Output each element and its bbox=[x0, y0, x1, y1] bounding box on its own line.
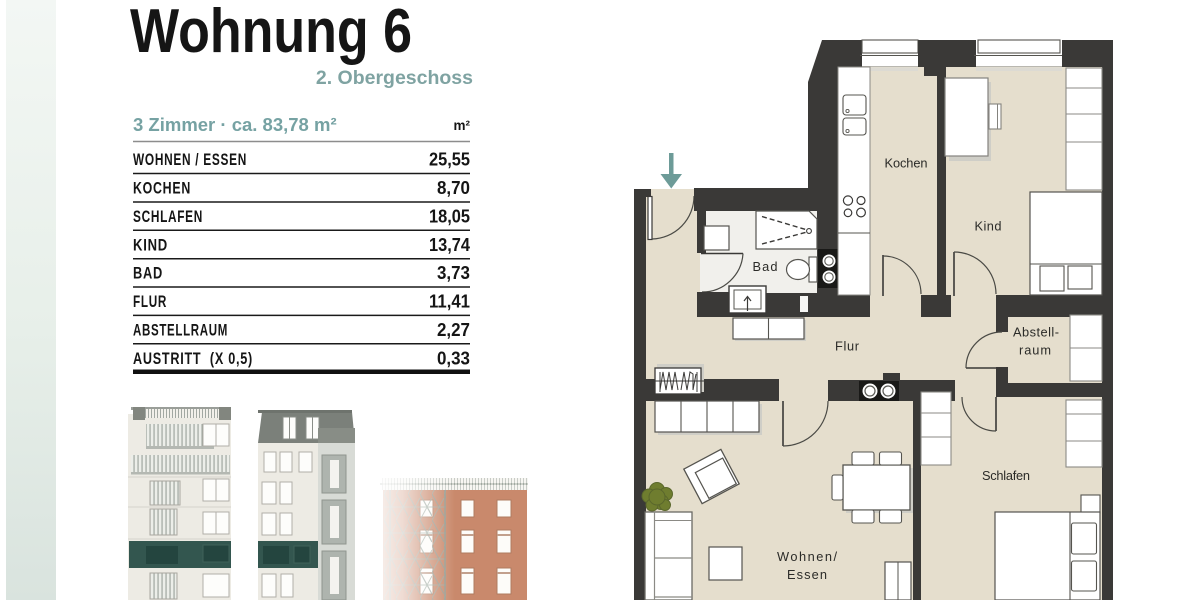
svg-text:KOCHEN: KOCHEN bbox=[133, 179, 191, 198]
svg-text:Essen: Essen bbox=[787, 567, 827, 582]
svg-text:Bad: Bad bbox=[753, 259, 778, 274]
svg-text:2,27: 2,27 bbox=[437, 320, 470, 340]
svg-text:BAD: BAD bbox=[133, 264, 163, 283]
svg-text:8,70: 8,70 bbox=[437, 178, 470, 198]
svg-text:Abstell-: Abstell- bbox=[1013, 325, 1059, 340]
svg-text:Wohnen/: Wohnen/ bbox=[777, 549, 837, 564]
svg-text:2. Obergeschoss: 2. Obergeschoss bbox=[316, 67, 473, 89]
svg-text:0,33: 0,33 bbox=[437, 348, 470, 368]
svg-text:Kochen: Kochen bbox=[885, 156, 928, 171]
svg-text:KIND: KIND bbox=[133, 235, 168, 254]
svg-text:WOHNEN / ESSEN: WOHNEN / ESSEN bbox=[133, 150, 247, 169]
svg-text:Flur: Flur bbox=[835, 339, 860, 354]
svg-text:11,41: 11,41 bbox=[429, 292, 470, 312]
svg-text:Kind: Kind bbox=[975, 219, 1002, 234]
svg-text:ABSTELLRAUM: ABSTELLRAUM bbox=[133, 320, 228, 339]
svg-text:3 Zimmer · ca. 83,78 m²: 3 Zimmer · ca. 83,78 m² bbox=[133, 114, 337, 135]
svg-text:18,05: 18,05 bbox=[429, 207, 470, 227]
svg-text:25,55: 25,55 bbox=[429, 150, 470, 170]
svg-text:SCHLAFEN: SCHLAFEN bbox=[133, 207, 203, 226]
svg-text:m²: m² bbox=[454, 118, 471, 133]
svg-text:Schlafen: Schlafen bbox=[982, 468, 1030, 483]
svg-text:Wohnung 6: Wohnung 6 bbox=[130, 0, 412, 66]
svg-text:AUSTRITT (X 0,5): AUSTRITT (X 0,5) bbox=[133, 349, 253, 368]
svg-text:raum: raum bbox=[1019, 343, 1051, 358]
svg-text:13,74: 13,74 bbox=[429, 235, 470, 255]
svg-text:3,73: 3,73 bbox=[437, 263, 470, 283]
svg-text:FLUR: FLUR bbox=[133, 292, 167, 311]
